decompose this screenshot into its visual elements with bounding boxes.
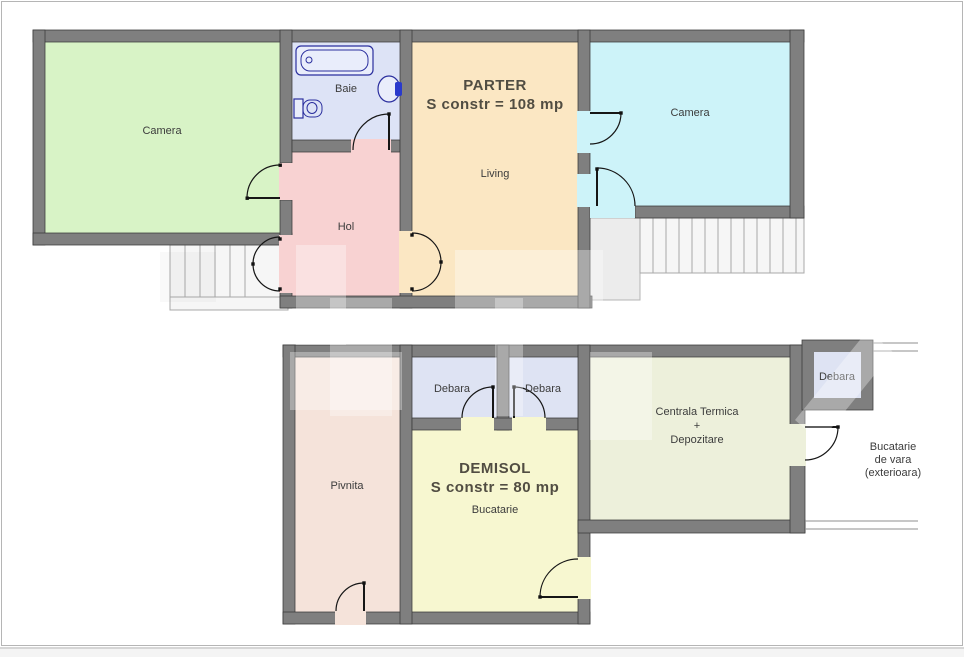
room-bucatarie (412, 430, 578, 612)
watermark-shape (590, 352, 652, 440)
label-bucatarie-vara-3: (exterioara) (865, 467, 921, 479)
wall-segment (578, 152, 590, 175)
wall-segment (33, 233, 292, 245)
wall-segment (280, 30, 292, 163)
wall-segment (790, 465, 805, 533)
wall-segment (578, 520, 805, 533)
room-label-baie: Baie (335, 83, 357, 95)
footer-strip (0, 649, 964, 657)
wall-segment (545, 418, 578, 430)
wall-segment (635, 206, 804, 218)
door-opening (577, 557, 591, 599)
parter-plan: Camera Baie PARTER S constr = 108 mp Liv… (33, 30, 804, 310)
wall-segment (283, 612, 336, 624)
room-label-centrala-1: Centrala Termica (656, 406, 740, 418)
stairs-right-exterior (590, 218, 804, 300)
room-label-pivnita: Pivnita (330, 480, 364, 492)
wall-segment (578, 598, 590, 624)
room-label-centrala-3: Depozitare (670, 434, 723, 446)
door-opening (577, 111, 591, 153)
room-label-hol: Hol (338, 221, 355, 233)
parter-area: S constr = 108 mp (426, 96, 563, 113)
door-opening (279, 235, 293, 293)
door-opening (512, 417, 546, 431)
wall-segment (33, 30, 804, 42)
toilet-tank (294, 99, 303, 118)
door-opening (335, 611, 366, 625)
door-opening (789, 424, 806, 466)
room-label-camera-right: Camera (670, 107, 710, 119)
sink-faucet (395, 82, 402, 96)
wall-segment (578, 30, 590, 112)
wall-segment (365, 612, 590, 624)
room-label-bucatarie: Bucatarie (472, 504, 518, 516)
wall-segment (33, 30, 45, 245)
wall-segment (292, 140, 352, 152)
floor-plan-page: Camera Baie PARTER S constr = 108 mp Liv… (0, 0, 964, 657)
watermark-shape (290, 352, 402, 410)
demisol-title: DEMISOL (459, 460, 531, 477)
floor-plan-drawing: Camera Baie PARTER S constr = 108 mp Liv… (0, 0, 964, 657)
wall-segment (390, 140, 400, 152)
door-opening (461, 417, 494, 431)
door-opening (351, 139, 391, 153)
demisol-area: S constr = 80 mp (431, 479, 559, 496)
wall-segment (493, 418, 513, 430)
room-camera-left (45, 42, 280, 233)
label-bucatarie-vara-2: de vara (875, 454, 913, 466)
door-opening (279, 163, 293, 200)
wall-segment (412, 418, 462, 430)
label-bucatarie-vara-1: Bucatarie (870, 441, 916, 453)
room-label-debara-right: Debara (525, 383, 562, 395)
parter-title: PARTER (463, 77, 527, 94)
door-opening (590, 206, 635, 218)
wall-segment (790, 30, 804, 218)
wall-segment (400, 30, 412, 232)
room-label-camera-left: Camera (142, 125, 182, 137)
stairs-right-steps (640, 218, 804, 273)
door-opening (399, 231, 413, 293)
room-camera-right (590, 42, 790, 206)
room-label-centrala-2: + (694, 420, 700, 432)
room-label-living: Living (481, 168, 510, 180)
watermark-shape (160, 252, 216, 302)
room-label-debara-left: Debara (434, 383, 471, 395)
watermark-shape (455, 250, 603, 338)
door-opening (577, 174, 591, 207)
wall-segment (280, 200, 292, 236)
